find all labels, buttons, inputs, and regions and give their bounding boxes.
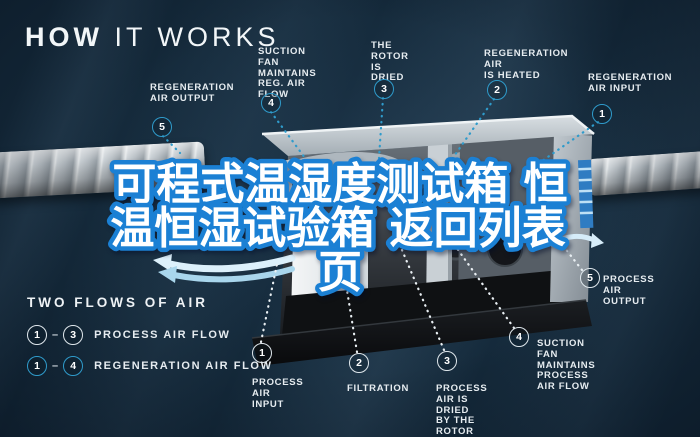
legend-label: PROCESS AIR FLOW [94,329,230,341]
callout-label: SUCTION FAN MAINTAINS PROCESS AIR FLOW [537,339,595,393]
callout-label: PROCESS AIR OUTPUT [603,275,654,307]
callout-number-badge: 1 [592,104,612,124]
infographic-canvas: HOW IT WORKS REGENERATION AIR OUTPUT 5 S… [0,0,700,437]
legend-badge-from: 1 [27,356,47,376]
cabinet-body [252,116,594,366]
legend-label: REGENERATION AIR FLOW [94,360,272,372]
callout-number-badge: 4 [261,93,281,113]
callout-number-badge: 3 [437,351,457,371]
legend-dash: – [52,329,58,341]
callout-number-badge: 3 [374,79,394,99]
legend-badge-from: 1 [27,325,47,345]
blue-flex-connector [578,160,593,228]
callout-label: FILTRATION [347,384,409,395]
legend-heading: TWO FLOWS OF AIR [27,295,208,310]
callout-number-badge: 5 [580,268,600,288]
title-bold: HOW [25,22,103,52]
callout-label: REGENERATION AIR OUTPUT [150,83,234,105]
callout-label: REGENERATION AIR INPUT [588,73,672,95]
callout-label: REGENERATION AIR IS HEATED [484,49,568,81]
callout-label: THE ROTOR IS DRIED [371,41,409,84]
callout-number-badge: 4 [509,327,529,347]
legend-badge-to: 4 [63,356,83,376]
callout-number-badge: 2 [487,80,507,100]
callout-label: PROCESS AIR INPUT [252,378,303,410]
legend-row-regeneration: 1 – 4 REGENERATION AIR FLOW [27,356,273,376]
callout-label: PROCESS AIR IS DRIED BY THE ROTOR [436,384,487,437]
legend-badge-to: 3 [63,325,83,345]
page-title: HOW IT WORKS [25,22,280,53]
title-light: IT WORKS [115,22,280,52]
callout-number-badge: 2 [349,353,369,373]
callout-number-badge: 5 [152,117,172,137]
legend-dash: – [52,360,58,372]
legend-row-process: 1 – 3 PROCESS AIR FLOW [27,325,231,345]
